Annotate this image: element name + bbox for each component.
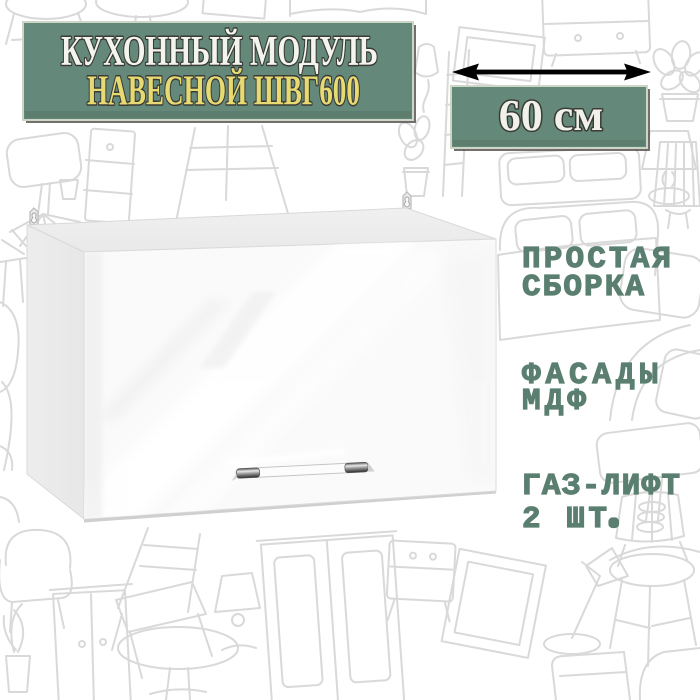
svg-text:ГАЗ-ЛИФТ: ГАЗ-ЛИФТ [522,469,680,504]
svg-text:60 см: 60 см [499,91,604,140]
svg-text:НАВЕСНОЙ ШВГ600: НАВЕСНОЙ ШВГ600 [87,69,360,115]
svg-text:МДФ: МДФ [522,384,586,419]
svg-text:СБОРКА: СБОРКА [522,270,644,305]
